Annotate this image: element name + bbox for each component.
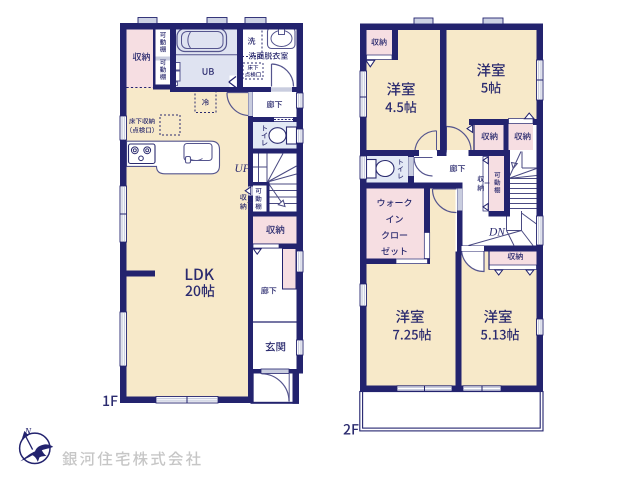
svg-text:UP: UP [235,163,250,175]
svg-text:DN: DN [488,227,506,239]
svg-text:N: N [24,427,32,437]
